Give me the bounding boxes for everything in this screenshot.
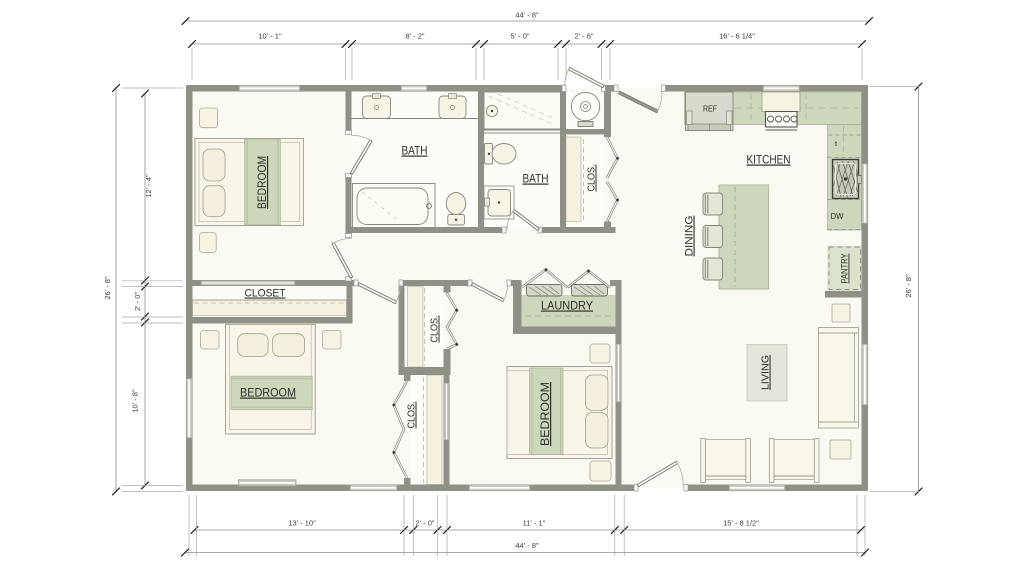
svg-text:CLOS.: CLOS.	[430, 316, 441, 343]
svg-text:DINING: DINING	[684, 216, 696, 257]
svg-text:BEDROOM: BEDROOM	[538, 382, 552, 446]
svg-text:LAUNDRY: LAUNDRY	[541, 301, 593, 313]
svg-text:26' - 8": 26' - 8"	[103, 276, 112, 300]
svg-text:BATH: BATH	[523, 172, 549, 186]
svg-text:REF: REF	[703, 104, 717, 114]
svg-text:11' - 1": 11' - 1"	[523, 519, 546, 528]
svg-text:15' - 8 1/2": 15' - 8 1/2"	[723, 519, 759, 528]
svg-text:10' - 8": 10' - 8"	[131, 389, 140, 413]
svg-text:2' - 0": 2' - 0"	[415, 519, 434, 528]
svg-text:2' - 6": 2' - 6"	[574, 32, 593, 41]
svg-text:PANTRY: PANTRY	[840, 254, 850, 284]
svg-text:CLOSET: CLOSET	[245, 288, 286, 300]
svg-text:10' - 1": 10' - 1"	[258, 32, 282, 41]
svg-text:44' - 8": 44' - 8"	[515, 541, 539, 550]
svg-text:26' - 8": 26' - 8"	[904, 274, 913, 298]
svg-text:5' - 0": 5' - 0"	[510, 32, 529, 41]
svg-text:8' - 2": 8' - 2"	[405, 32, 424, 41]
svg-text:CLOS.: CLOS.	[587, 165, 598, 192]
svg-text:12' - 4": 12' - 4"	[144, 174, 153, 198]
svg-text:2' - 0": 2' - 0"	[133, 292, 142, 311]
svg-text:BATH: BATH	[402, 144, 428, 158]
svg-text:44' - 8": 44' - 8"	[515, 11, 539, 20]
svg-text:KITCHEN: KITCHEN	[747, 153, 791, 167]
svg-text:CLOS.: CLOS.	[407, 402, 418, 429]
svg-text:LIVING: LIVING	[760, 355, 772, 390]
svg-text:13' - 10": 13' - 10"	[288, 519, 316, 528]
svg-text:DW: DW	[831, 211, 844, 221]
svg-text:16' - 6 1/4": 16' - 6 1/4"	[719, 32, 755, 41]
svg-text:BEDROOM: BEDROOM	[240, 386, 296, 400]
svg-text:BEDROOM: BEDROOM	[257, 156, 269, 209]
